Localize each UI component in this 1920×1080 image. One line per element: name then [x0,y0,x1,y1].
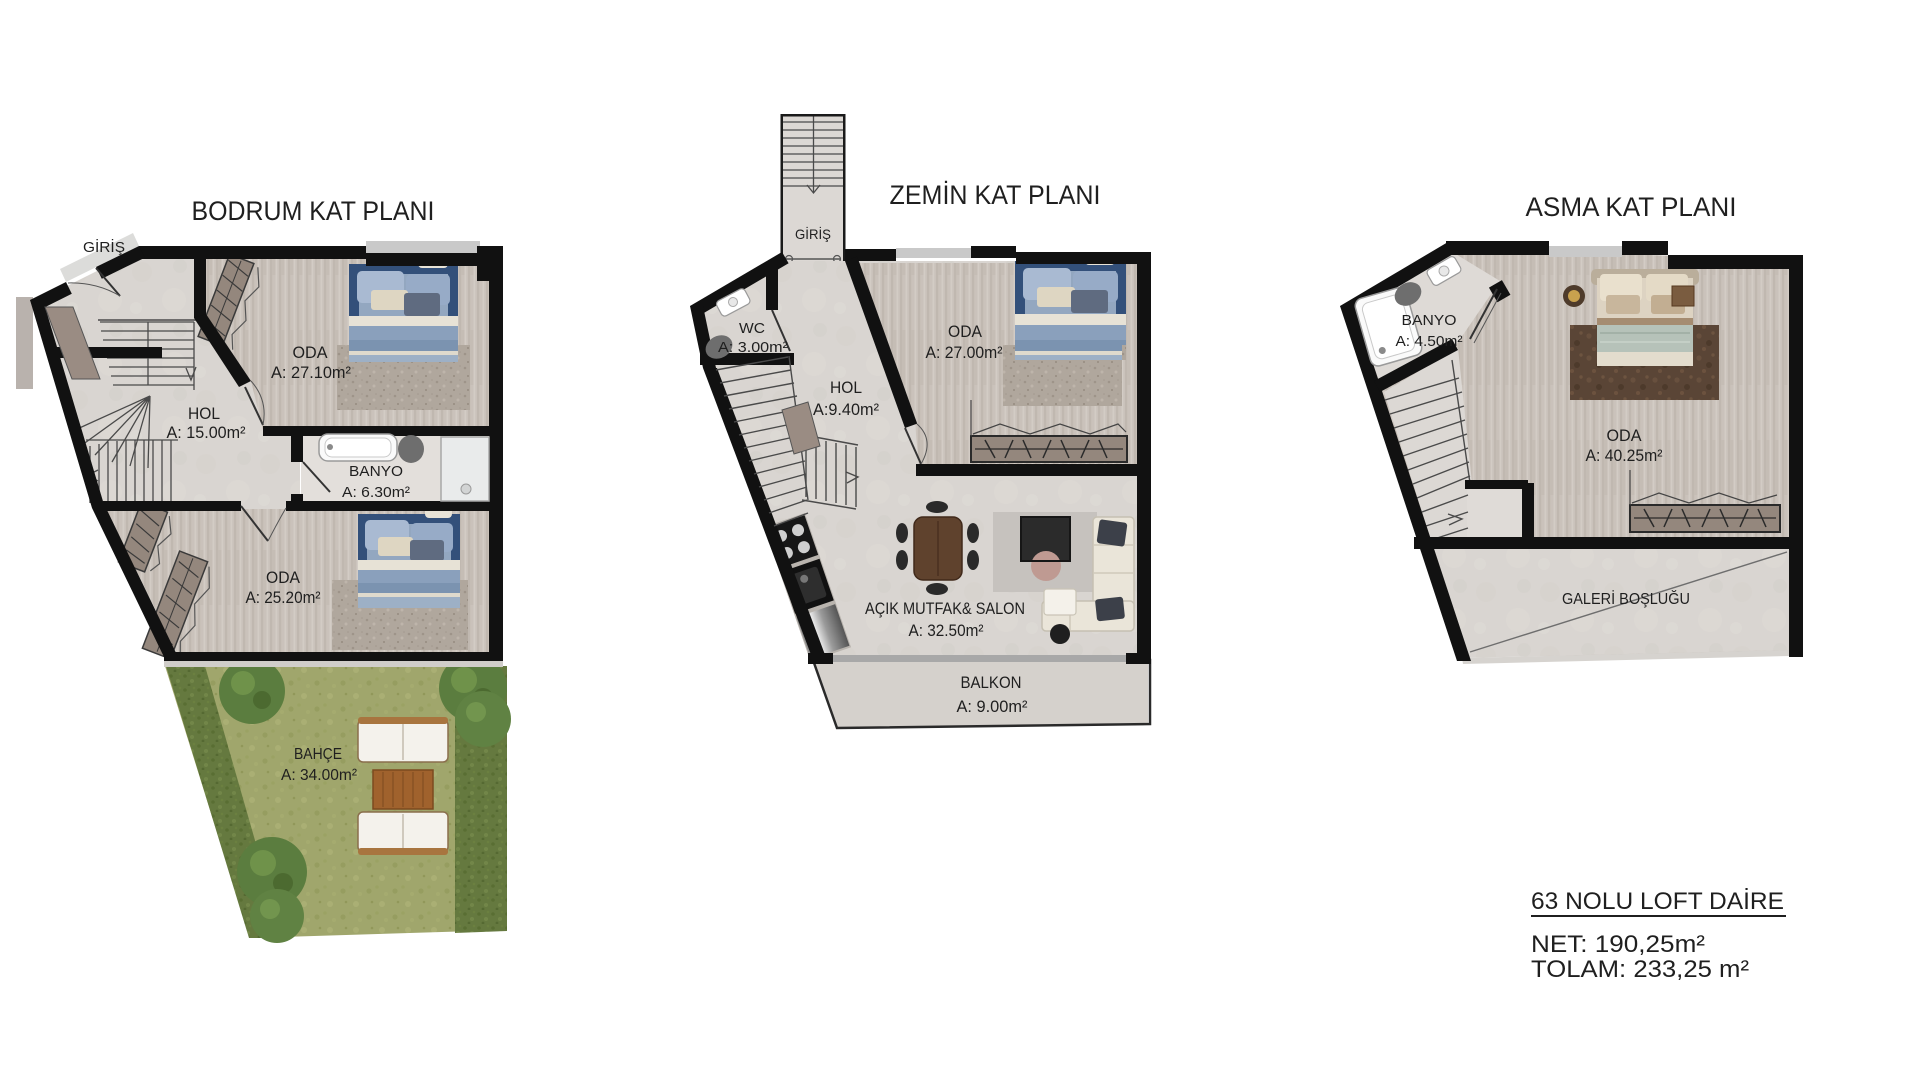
svg-text:BALKON: BALKON [961,673,1022,692]
svg-text:BANYO: BANYO [349,463,403,480]
svg-text:WC: WC [739,320,765,337]
svg-text:A: 34.00m²: A: 34.00m² [281,767,358,784]
svg-text:HOL: HOL [188,404,220,423]
svg-text:AÇIK MUTFAK& SALON: AÇIK MUTFAK& SALON [865,599,1025,618]
svg-text:BAHÇE: BAHÇE [294,746,342,763]
svg-text:ODA: ODA [266,568,301,587]
svg-text:ODA: ODA [948,322,983,341]
svg-text:A:9.40m²: A:9.40m² [813,400,879,419]
svg-text:A: 4.50m²: A: 4.50m² [1396,333,1463,350]
svg-text:TOLAM: 233,25 m²: TOLAM: 233,25 m² [1531,956,1749,983]
svg-text:A: 15.00m²: A: 15.00m² [167,423,246,442]
svg-text:ODA: ODA [293,343,329,362]
svg-text:ASMA KAT PLANI: ASMA KAT PLANI [1526,192,1737,222]
svg-text:GALERİ BOŞLUĞU: GALERİ BOŞLUĞU [1562,589,1690,608]
svg-text:GİRİŞ: GİRİŞ [83,238,125,256]
svg-text:NET: 190,25m²: NET: 190,25m² [1531,931,1705,958]
svg-text:ZEMİN KAT PLANI: ZEMİN KAT PLANI [890,179,1101,210]
svg-text:63 NOLU LOFT DAİRE: 63 NOLU LOFT DAİRE [1531,888,1784,915]
svg-text:BODRUM KAT PLANI: BODRUM KAT PLANI [192,196,435,226]
svg-text:A: 6.30m²: A: 6.30m² [342,484,410,501]
svg-text:A: 40.25m²: A: 40.25m² [1586,446,1663,465]
svg-text:BANYO: BANYO [1402,312,1457,329]
svg-text:A: 3.00m²: A: 3.00m² [718,339,788,356]
svg-text:A: 25.20m²: A: 25.20m² [246,588,321,607]
svg-text:A: 32.50m²: A: 32.50m² [909,621,984,640]
svg-text:GİRİŞ: GİRİŞ [795,225,831,242]
svg-text:A: 27.00m²: A: 27.00m² [926,343,1003,362]
svg-text:A: 9.00m²: A: 9.00m² [957,697,1028,716]
svg-text:HOL: HOL [830,378,862,397]
svg-text:A: 27.10m²: A: 27.10m² [271,363,351,382]
svg-text:ODA: ODA [1607,426,1643,445]
